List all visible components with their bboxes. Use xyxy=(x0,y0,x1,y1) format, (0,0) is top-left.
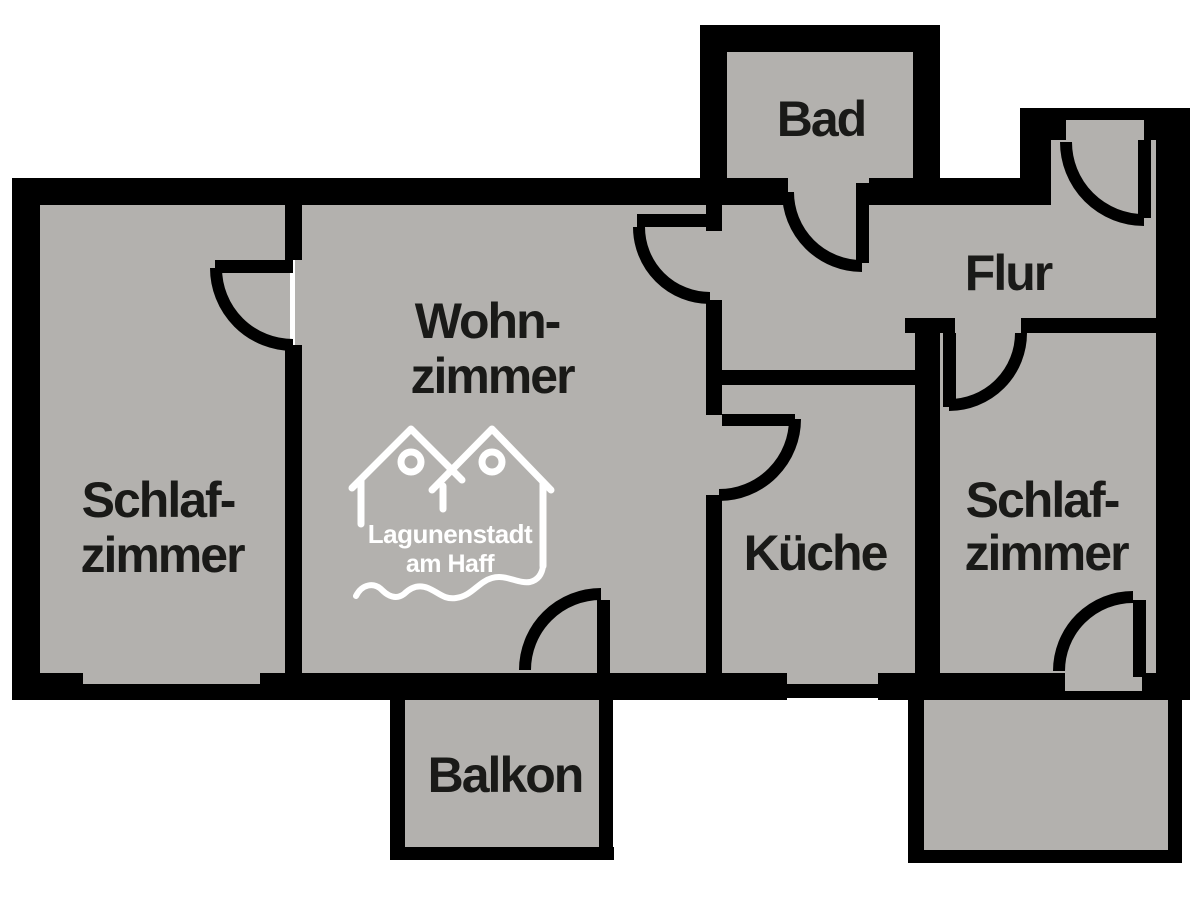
wall-bottom-d xyxy=(1142,673,1190,700)
door-leaf-wohn-flur xyxy=(637,214,715,227)
wall-outer-left xyxy=(12,178,40,700)
label-bad: Bad xyxy=(777,91,865,147)
label-schlafzimmerR-line2: zimmer xyxy=(964,525,1129,581)
door-leaf-terrace xyxy=(1133,600,1146,677)
label-balkon: Balkon xyxy=(428,747,583,803)
label-schlafzimmerR-line1: Schlaf- xyxy=(966,472,1119,528)
wall-top-bad-to-alcove xyxy=(940,178,1020,205)
wall-balkon-right xyxy=(599,700,613,860)
floorplan-page: Bad Flur Wohn- zimmer Schlaf- zimmer Küc… xyxy=(0,0,1200,900)
threshold-entrance-door xyxy=(1066,108,1144,120)
door-leaf-kueche xyxy=(722,414,795,426)
wall-bad-top xyxy=(700,25,940,52)
floorplan-svg: Bad Flur Wohn- zimmer Schlaf- zimmer Küc… xyxy=(0,0,1200,900)
label-kueche: Küche xyxy=(744,525,888,581)
door-leaf-bedroomR xyxy=(943,333,956,407)
wall-living-kueche-mid xyxy=(706,300,722,415)
wall-bedroomR-top-left xyxy=(905,318,955,333)
door-leaf-bedroomL xyxy=(215,260,293,273)
threshold-terrace-door xyxy=(1065,691,1142,700)
wall-terrace-right xyxy=(1168,700,1182,863)
wall-bedroomR-top-right xyxy=(1021,318,1158,333)
label-schlafzimmerL-line1: Schlaf- xyxy=(82,472,235,528)
label-flur: Flur xyxy=(965,245,1053,301)
label-wohnzimmer-line1: Wohn- xyxy=(415,293,560,349)
wall-terrace-left xyxy=(908,700,924,863)
wall-alcove-top-left xyxy=(1020,108,1066,140)
logo-text-line1: Lagunenstadt xyxy=(368,519,533,549)
wall-bottom-a xyxy=(12,673,83,700)
floor-flur-lower xyxy=(715,335,915,375)
wall-bedroomL-upper xyxy=(285,178,302,260)
door-leaf-entrance xyxy=(1138,140,1151,218)
wall-kueche-bedroomR xyxy=(915,333,940,673)
wall-flur-kueche xyxy=(722,370,915,385)
wall-outer-right xyxy=(1156,108,1190,700)
window-kueche xyxy=(787,684,878,698)
label-wohnzimmer-line2: zimmer xyxy=(410,348,575,404)
floor-terrace xyxy=(915,695,1173,855)
floor-terrace-door-gap xyxy=(1065,664,1142,695)
door-leaf-bad xyxy=(856,183,869,263)
logo-text-line2: am Haff xyxy=(406,550,495,578)
wall-bottom-c xyxy=(878,673,1065,700)
window-schlafzimmer-left xyxy=(83,684,260,700)
wall-bottom-b xyxy=(260,673,787,700)
wall-bad-bottom-right xyxy=(869,178,940,205)
wall-bad-bottom-left xyxy=(700,178,788,205)
wall-terrace-bottom xyxy=(908,850,1182,863)
door-leaf-balkon xyxy=(597,600,610,673)
wall-balkon-left xyxy=(390,688,405,860)
wall-bedroomL-lower xyxy=(285,345,302,700)
wall-living-kueche-low xyxy=(706,495,722,673)
wall-outer-top xyxy=(12,178,700,205)
label-schlafzimmerL-line2: zimmer xyxy=(80,527,245,583)
wall-balkon-bottom xyxy=(390,847,614,860)
